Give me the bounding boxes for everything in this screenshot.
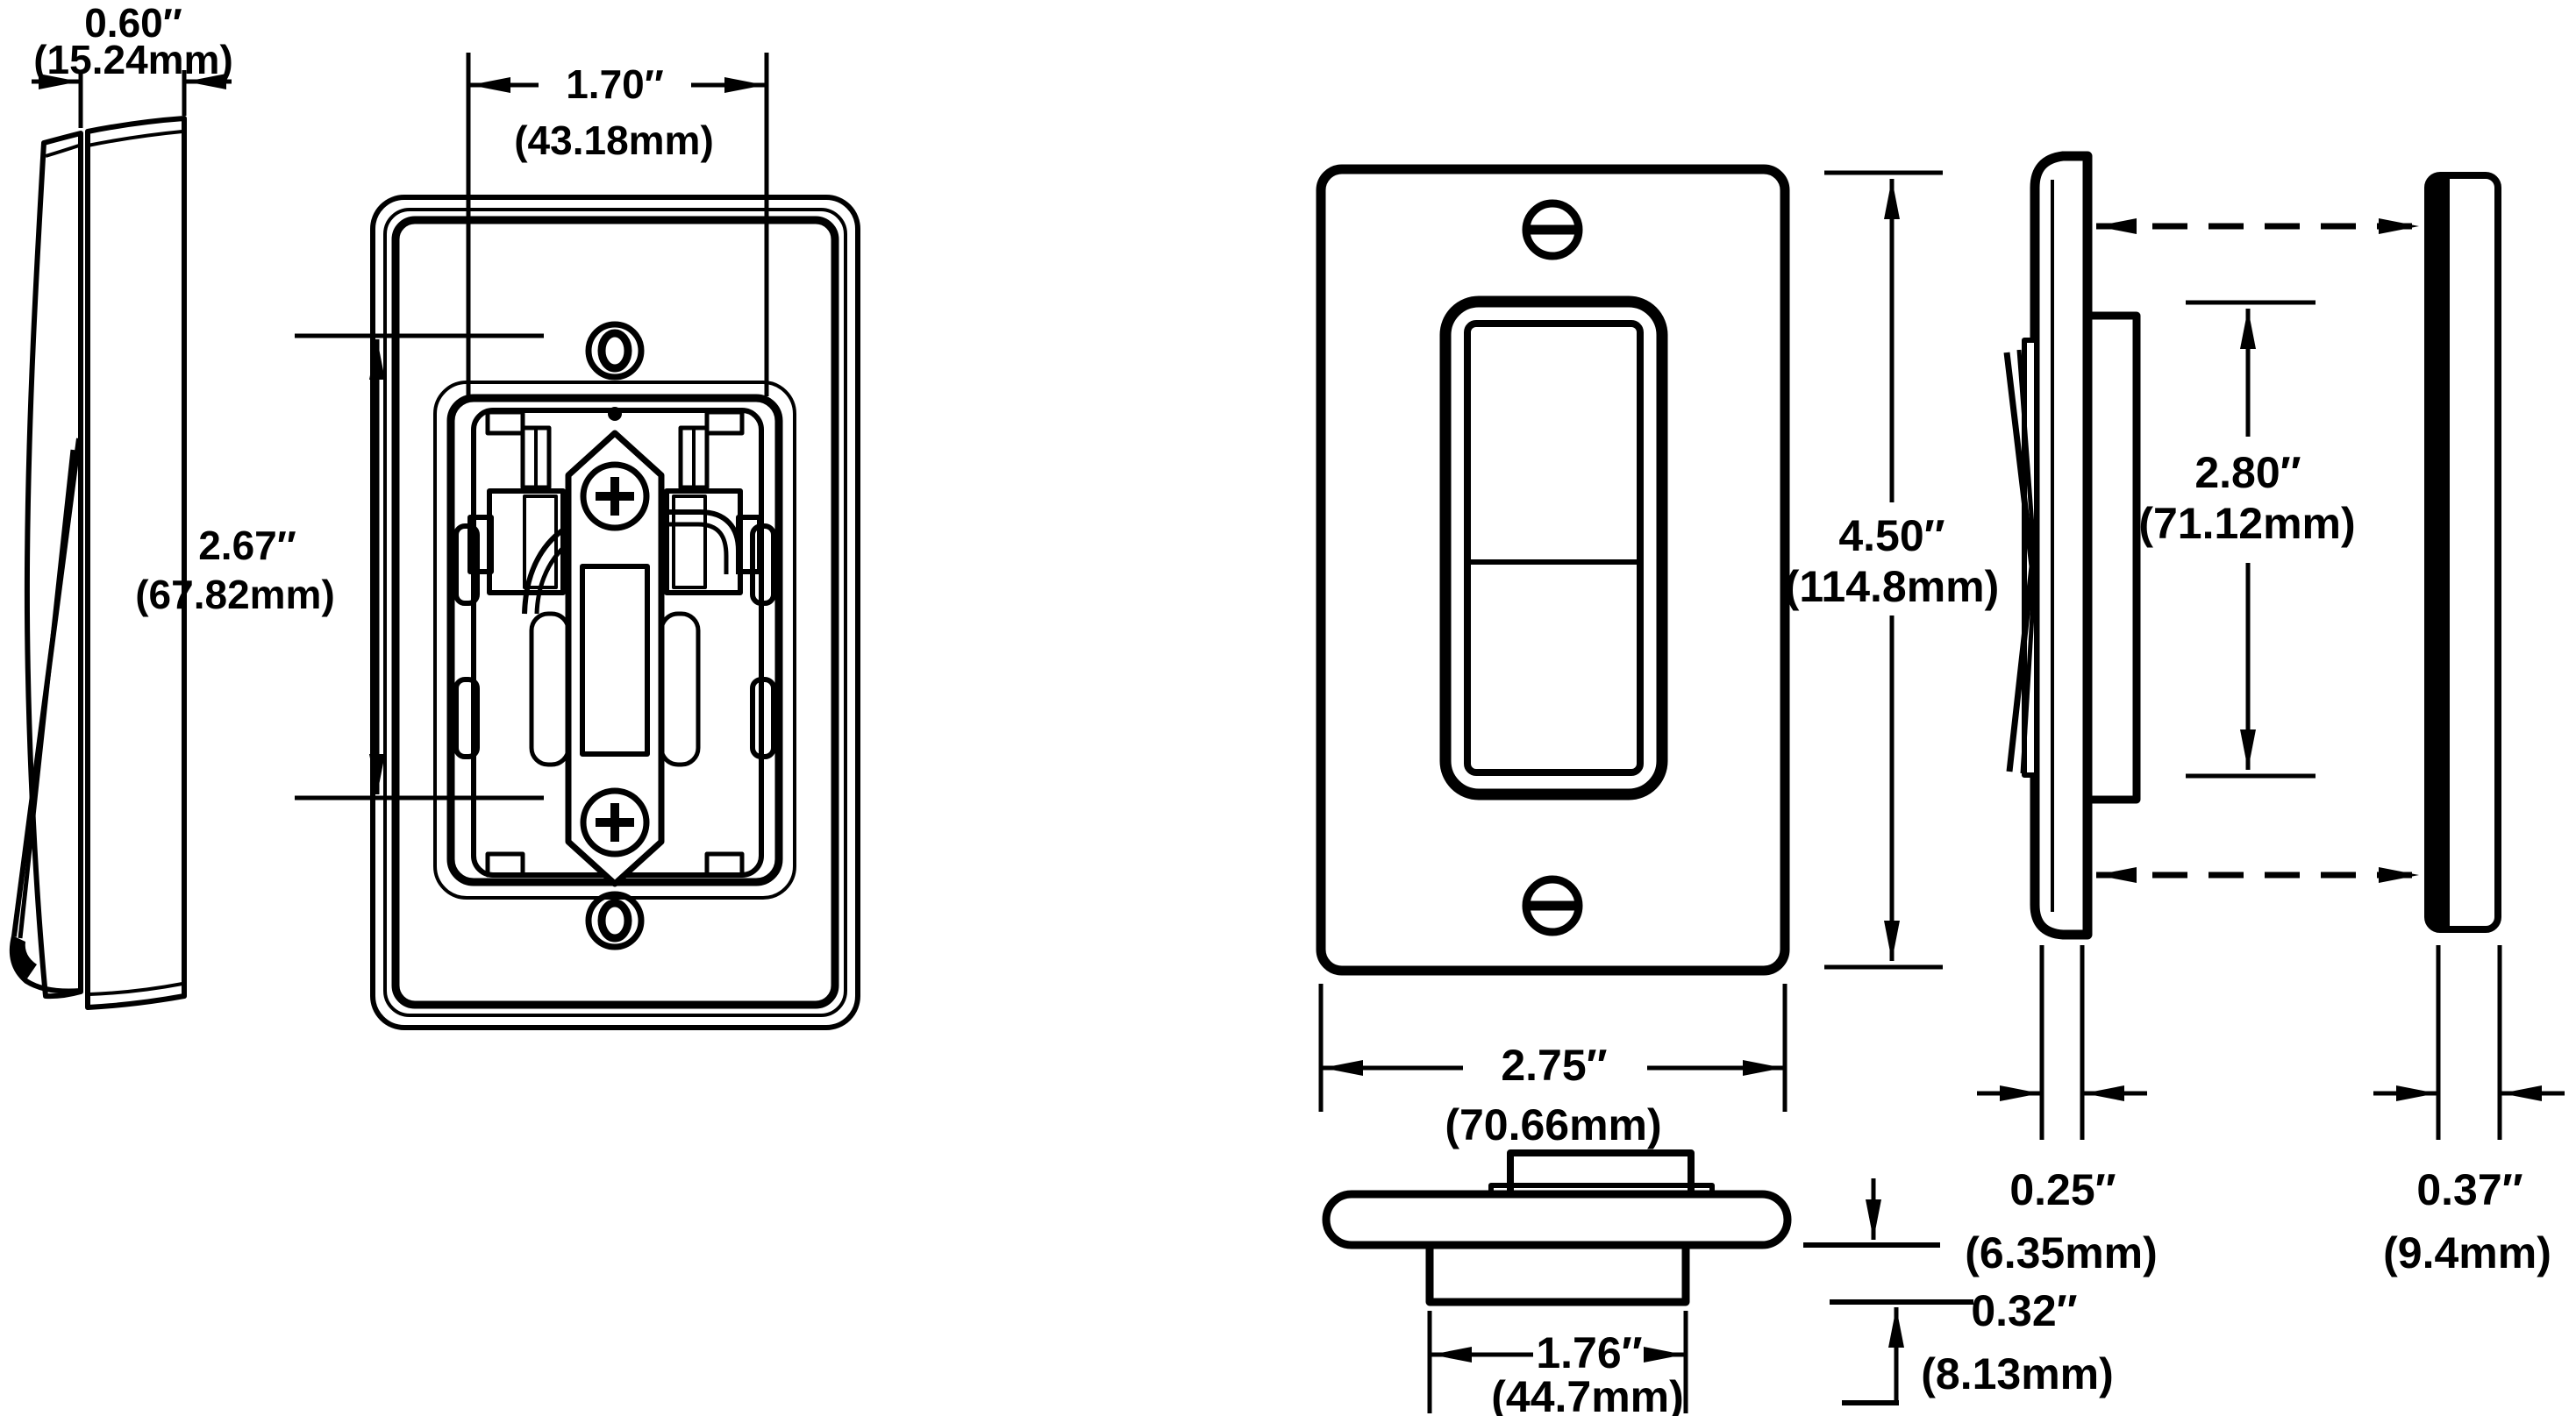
plate-slab-outline <box>88 118 184 1007</box>
dim-label-mm: (71.12mm) <box>2138 499 2355 548</box>
inner-wing <box>661 614 698 765</box>
wallplate-front <box>1321 169 1785 971</box>
dim-label-inches: 0.37″ <box>2416 1165 2522 1214</box>
plate-profile <box>2035 156 2087 935</box>
slotted-screw-top <box>1524 203 1581 256</box>
plate-slab-bottom-edge <box>89 984 182 994</box>
section-fill-band <box>2430 179 2450 926</box>
dim-topview-width: 1.76″ (44.7mm) <box>1430 1311 1686 1416</box>
dim-side-depth: 0.60″ (15.24mm) <box>32 0 233 128</box>
view-front: 4.50″ (114.8mm) 2.75″ (70.66mm) <box>1321 169 1999 1149</box>
corner-ear <box>707 854 742 875</box>
dim-label-mm: (44.7mm) <box>1491 1372 1684 1416</box>
dim-rear-height: 2.67″ (67.82mm) <box>135 336 544 798</box>
corner-ear <box>488 412 523 433</box>
rocker-inner <box>1467 324 1640 772</box>
switch-mechanism <box>456 407 774 884</box>
view-side-section: 0.37″ (9.4mm) <box>2373 175 2565 1277</box>
phillips-screw-top <box>583 465 646 528</box>
body-box <box>1430 1245 1686 1302</box>
bezel-slab-top-edge <box>46 146 79 156</box>
dim-label-inches: 0.25″ <box>2009 1165 2116 1214</box>
dim-opening-height: 2.80″ (71.12mm) <box>2138 302 2355 776</box>
dim-label-inches: 2.75″ <box>1501 1041 1607 1090</box>
dim-label-mm: (15.24mm) <box>33 37 233 82</box>
dim-label-inches: 4.50″ <box>1838 511 1944 560</box>
slotted-screw-bottom <box>1524 879 1581 932</box>
rocker-outer <box>1445 302 1662 794</box>
terminal-right <box>667 491 760 593</box>
dim-label-mm: (70.66mm) <box>1445 1100 1661 1149</box>
bezel-slab-outline <box>27 133 81 996</box>
dim-label-mm: (43.18mm) <box>514 117 714 163</box>
corner-ear <box>707 412 742 433</box>
plate-slab-top-edge <box>88 132 182 146</box>
phillips-screw-bottom <box>583 791 646 854</box>
dimensional-drawing-page: 0.60″ (15.24mm) <box>0 0 2576 1416</box>
device-box <box>2087 316 2137 800</box>
dim-label-mm: (67.82mm) <box>135 572 335 617</box>
dim-front-height: 4.50″ (114.8mm) <box>1785 173 2000 967</box>
dim-label-inches: 2.80″ <box>2194 448 2301 497</box>
view-top: 1.76″ (44.7mm) 0.32″ (8.13mm) <box>1326 1153 2114 1416</box>
view-rear: 1.70″ (43.18mm) 2.67″ (67.82mm) <box>135 53 858 1028</box>
view-side-assembled: 0.60″ (15.24mm) <box>12 0 233 1007</box>
dim-label-inches: 1.76″ <box>1536 1328 1642 1377</box>
boss-inner <box>602 333 628 368</box>
plate-bar <box>1326 1194 1788 1245</box>
dim-label-inches: 2.67″ <box>198 523 296 568</box>
switch-dimensional-drawing: 0.60″ (15.24mm) <box>0 0 2576 1416</box>
dim-rear-width: 1.70″ (43.18mm) <box>468 53 767 396</box>
view-side-plate: 2.80″ (71.12mm) 0.25″ (6.35mm) <box>1965 156 2419 1277</box>
dim-plate-thickness: 0.25″ (6.35mm) <box>1965 945 2158 1277</box>
screw-boss-top <box>589 324 641 377</box>
top-rivet <box>608 407 622 421</box>
dim-label-inches: 1.70″ <box>566 61 664 107</box>
dim-label-mm: (8.13mm) <box>1921 1349 2114 1398</box>
dim-box-thickness: 0.37″ (9.4mm) <box>2373 945 2565 1277</box>
dim-label-mm: (6.35mm) <box>1965 1228 2158 1277</box>
boss-inner <box>602 903 628 938</box>
dim-front-width: 2.75″ (70.66mm) <box>1321 984 1785 1149</box>
corner-ear <box>488 854 523 875</box>
strap-cutout <box>582 566 647 754</box>
inner-wing <box>532 614 568 765</box>
screw-boss-bottom <box>589 894 641 947</box>
dim-label-mm: (114.8mm) <box>1785 562 2000 611</box>
dim-label-inches: 0.32″ <box>1971 1286 2077 1335</box>
dim-label-mm: (9.4mm) <box>2383 1228 2551 1277</box>
